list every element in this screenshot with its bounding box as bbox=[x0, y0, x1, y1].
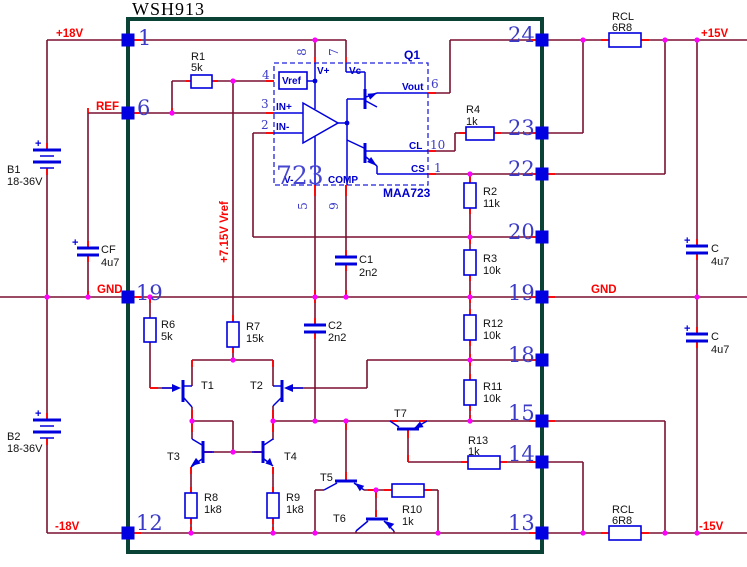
pad-vplus: V+ bbox=[317, 66, 330, 77]
net-gnd-right: GND bbox=[591, 284, 617, 296]
label-t3: T3 bbox=[167, 451, 180, 463]
pad-vc: Vc bbox=[349, 66, 362, 77]
value-r9: 1k8 bbox=[286, 504, 304, 516]
net-minus15v: -15V bbox=[699, 521, 724, 533]
pin-24 bbox=[536, 34, 549, 47]
net-gnd-left: GND bbox=[97, 284, 123, 296]
value-c-bottom: 4u7 bbox=[711, 344, 729, 356]
polarity-b2: + bbox=[35, 408, 41, 420]
value-c2: 2n2 bbox=[328, 332, 346, 344]
polarity-b1: + bbox=[35, 138, 41, 150]
pin-label-22: 22 bbox=[508, 157, 535, 181]
resistor-r3 bbox=[464, 250, 476, 275]
component-labels: R1 5k R6 5k R7 15k R8 1k8 R9 1k8 R2 11k … bbox=[7, 11, 729, 528]
resistor-r10 bbox=[392, 484, 424, 497]
ic-pin-5: 5 bbox=[296, 202, 310, 210]
label-b1: B1 bbox=[7, 164, 20, 176]
pin-20 bbox=[536, 231, 549, 244]
resistor-r11 bbox=[464, 380, 476, 405]
label-c2: C2 bbox=[328, 320, 342, 332]
label-t7: T7 bbox=[394, 408, 407, 420]
resistors bbox=[144, 33, 641, 540]
pin-13 bbox=[536, 527, 549, 540]
label-r10: R10 bbox=[402, 504, 422, 516]
resistor-r8 bbox=[185, 493, 197, 518]
ic-pin-3: 3 bbox=[261, 97, 269, 111]
label-t4: T4 bbox=[284, 451, 297, 463]
label-r3: R3 bbox=[483, 253, 497, 265]
net-ref: REF bbox=[96, 101, 119, 113]
ic-designator: Q1 bbox=[404, 48, 420, 62]
pad-cs: CS bbox=[411, 164, 425, 175]
label-r11: R11 bbox=[483, 381, 502, 393]
label-r4: R4 bbox=[466, 104, 480, 116]
value-rcl-bottom: 6R8 bbox=[612, 515, 632, 527]
ic-pin-7: 7 bbox=[327, 48, 341, 56]
value-r6: 5k bbox=[161, 331, 173, 343]
label-r12: R12 bbox=[483, 318, 503, 330]
pin-14 bbox=[536, 456, 549, 469]
value-r3: 10k bbox=[483, 265, 501, 277]
resistor-r4 bbox=[466, 127, 494, 140]
pad-in-plus: IN+ bbox=[276, 102, 292, 113]
label-t6: T6 bbox=[333, 513, 346, 525]
polarity-c-bottom: + bbox=[684, 323, 690, 335]
pin-label-1: 1 bbox=[138, 26, 151, 50]
value-rcl-top: 6R8 bbox=[612, 22, 632, 34]
resistor-r1 bbox=[191, 75, 212, 88]
value-r10: 1k bbox=[402, 516, 414, 528]
label-t1: T1 bbox=[201, 380, 214, 392]
pin-label-15: 15 bbox=[508, 401, 535, 425]
value-r4: 1k bbox=[466, 116, 478, 128]
value-r11: 10k bbox=[483, 393, 501, 405]
value-r12: 10k bbox=[483, 330, 501, 342]
resistor-rcl-top bbox=[609, 33, 641, 47]
value-r2: 11k bbox=[483, 198, 500, 210]
pin-label-24: 24 bbox=[508, 23, 535, 47]
polarity-cf: + bbox=[72, 237, 78, 249]
resistor-r7 bbox=[227, 322, 239, 347]
pin-1 bbox=[122, 34, 135, 47]
pin-6 bbox=[122, 107, 135, 120]
value-b2: 18-36V bbox=[7, 443, 43, 455]
net-plus18v: +18V bbox=[56, 28, 84, 40]
opamp-triangle bbox=[303, 103, 338, 143]
resistor-r2 bbox=[464, 183, 476, 208]
junction bbox=[345, 121, 350, 126]
pin-19-left bbox=[122, 291, 135, 304]
value-r8: 1k8 bbox=[204, 504, 222, 516]
pad-in-minus: IN- bbox=[276, 122, 289, 133]
value-r13: 1k bbox=[468, 446, 480, 458]
pin-18 bbox=[536, 354, 549, 367]
value-r7: 15k bbox=[246, 333, 264, 345]
pin-label-23: 23 bbox=[508, 116, 535, 140]
label-b2: B2 bbox=[7, 431, 20, 443]
pin-22 bbox=[536, 168, 549, 181]
pad-comp: COMP bbox=[328, 175, 358, 186]
pass-transistor-emitter-arrow bbox=[368, 93, 378, 100]
pin-label-19-right: 19 bbox=[508, 281, 535, 305]
pin-label-14: 14 bbox=[508, 442, 535, 466]
ic-pin-9: 9 bbox=[327, 202, 341, 210]
resistor-r6 bbox=[144, 318, 156, 342]
value-c-top: 4u7 bbox=[711, 256, 729, 268]
resistor-r9 bbox=[267, 493, 279, 518]
schematic-page: WSH913 bbox=[0, 0, 747, 567]
pin-15 bbox=[536, 415, 549, 428]
page-title: WSH913 bbox=[132, 0, 205, 19]
resistor-r12 bbox=[464, 315, 476, 340]
net-plus15v: +15V bbox=[701, 28, 729, 40]
junction bbox=[313, 79, 318, 84]
ic-pin-4: 4 bbox=[262, 68, 270, 82]
pin-23 bbox=[536, 127, 549, 140]
label-c-bottom: C bbox=[711, 331, 719, 343]
label-r9: R9 bbox=[286, 492, 300, 504]
pin-label-12: 12 bbox=[136, 511, 163, 535]
ic-pin-8: 8 bbox=[295, 48, 309, 56]
pin-label-18: 18 bbox=[508, 343, 535, 367]
label-r2: R2 bbox=[483, 186, 497, 198]
value-r1: 5k bbox=[191, 62, 203, 74]
label-c-top: C bbox=[711, 243, 719, 255]
label-r6: R6 bbox=[161, 319, 175, 331]
pad-vref: Vref bbox=[282, 76, 302, 87]
schematic-canvas: WSH913 bbox=[0, 0, 747, 567]
ic-pin-2: 2 bbox=[261, 118, 269, 132]
ic-pin-6: 6 bbox=[431, 77, 439, 91]
ic-723-symbol: Vref V+ Vc IN+ IN- V- COMP Vout CL CS 72… bbox=[261, 48, 445, 210]
pin-label-6: 6 bbox=[137, 96, 150, 120]
resistor-rcl-bottom bbox=[609, 526, 641, 540]
pin-label-20: 20 bbox=[508, 220, 535, 244]
pin-label-19-left: 19 bbox=[136, 281, 163, 305]
label-cf: CF bbox=[101, 244, 116, 256]
pin-19-right bbox=[536, 291, 549, 304]
label-t2: T2 bbox=[250, 380, 263, 392]
ic-pin-1: 1 bbox=[434, 161, 442, 175]
pad-cl: CL bbox=[409, 141, 422, 152]
polarity-c-top: + bbox=[684, 235, 690, 247]
net-minus18v: -18V bbox=[55, 521, 80, 533]
ic-big-label: 723 bbox=[276, 161, 324, 190]
ic-pin-10: 10 bbox=[430, 138, 445, 152]
pad-vout: Vout bbox=[402, 82, 424, 93]
pin-12 bbox=[122, 527, 135, 540]
label-r7: R7 bbox=[246, 321, 260, 333]
label-r8: R8 bbox=[204, 492, 218, 504]
value-b1: 18-36V bbox=[7, 176, 43, 188]
value-cf: 4u7 bbox=[101, 257, 119, 269]
label-t5: T5 bbox=[320, 472, 333, 484]
value-c1: 2n2 bbox=[359, 267, 377, 279]
net-vref-rail: +7.15V Vref bbox=[219, 201, 231, 263]
label-c1: C1 bbox=[359, 254, 373, 266]
pin-label-13: 13 bbox=[508, 511, 535, 535]
ic-part-number: MAA723 bbox=[383, 186, 431, 200]
